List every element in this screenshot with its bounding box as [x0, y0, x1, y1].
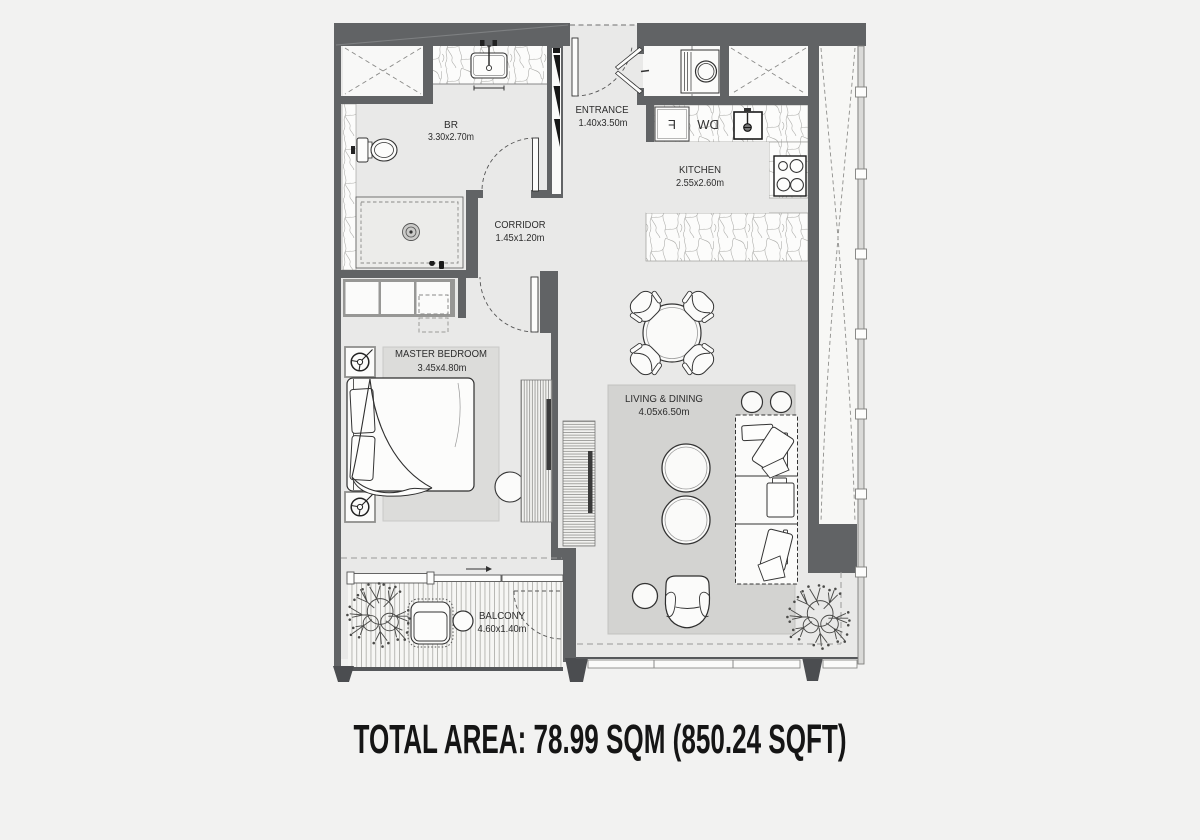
- svg-text:BR: BR: [444, 120, 458, 131]
- svg-text:3.45x4.80m: 3.45x4.80m: [418, 363, 467, 374]
- svg-text:TOTAL AREA: 78.99 SQM (850.24: TOTAL AREA: 78.99 SQM (850.24 SQFT): [354, 716, 847, 762]
- svg-text:4.05x6.50m: 4.05x6.50m: [639, 407, 690, 418]
- svg-text:2.55x2.60m: 2.55x2.60m: [676, 178, 724, 189]
- svg-text:3.30x2.70m: 3.30x2.70m: [428, 132, 474, 143]
- svg-text:BALCONY: BALCONY: [479, 611, 525, 622]
- svg-text:1.40x3.50m: 1.40x3.50m: [579, 118, 628, 129]
- svg-text:ENTRANCE: ENTRANCE: [576, 105, 629, 116]
- svg-text:KITCHEN: KITCHEN: [679, 165, 721, 176]
- svg-text:4.60x1.40m: 4.60x1.40m: [478, 624, 527, 635]
- svg-text:DW: DW: [696, 117, 718, 132]
- svg-text:1.45x1.20m: 1.45x1.20m: [496, 233, 545, 244]
- svg-text:MASTER BEDROOM: MASTER BEDROOM: [395, 349, 487, 360]
- svg-text:CORRIDOR: CORRIDOR: [495, 220, 546, 231]
- svg-text:LIVING & DINING: LIVING & DINING: [625, 394, 703, 405]
- svg-text:F: F: [668, 117, 676, 132]
